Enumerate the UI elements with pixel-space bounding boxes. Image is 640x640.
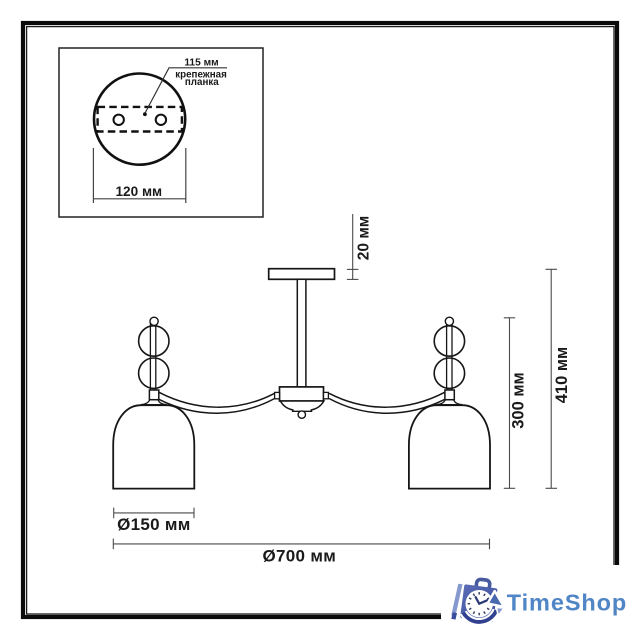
svg-text:410 мм: 410 мм: [553, 347, 571, 404]
svg-text:Ø150 мм: Ø150 мм: [117, 515, 191, 534]
svg-text:20 мм: 20 мм: [355, 216, 372, 260]
svg-text:планка: планка: [185, 77, 219, 88]
svg-text:Ø700 мм: Ø700 мм: [263, 546, 337, 565]
svg-text:300 мм: 300 мм: [510, 372, 528, 429]
svg-text:120 мм: 120 мм: [116, 184, 163, 199]
svg-text:TimeShop: TimeShop: [507, 589, 627, 615]
svg-text:115 мм: 115 мм: [184, 58, 218, 69]
